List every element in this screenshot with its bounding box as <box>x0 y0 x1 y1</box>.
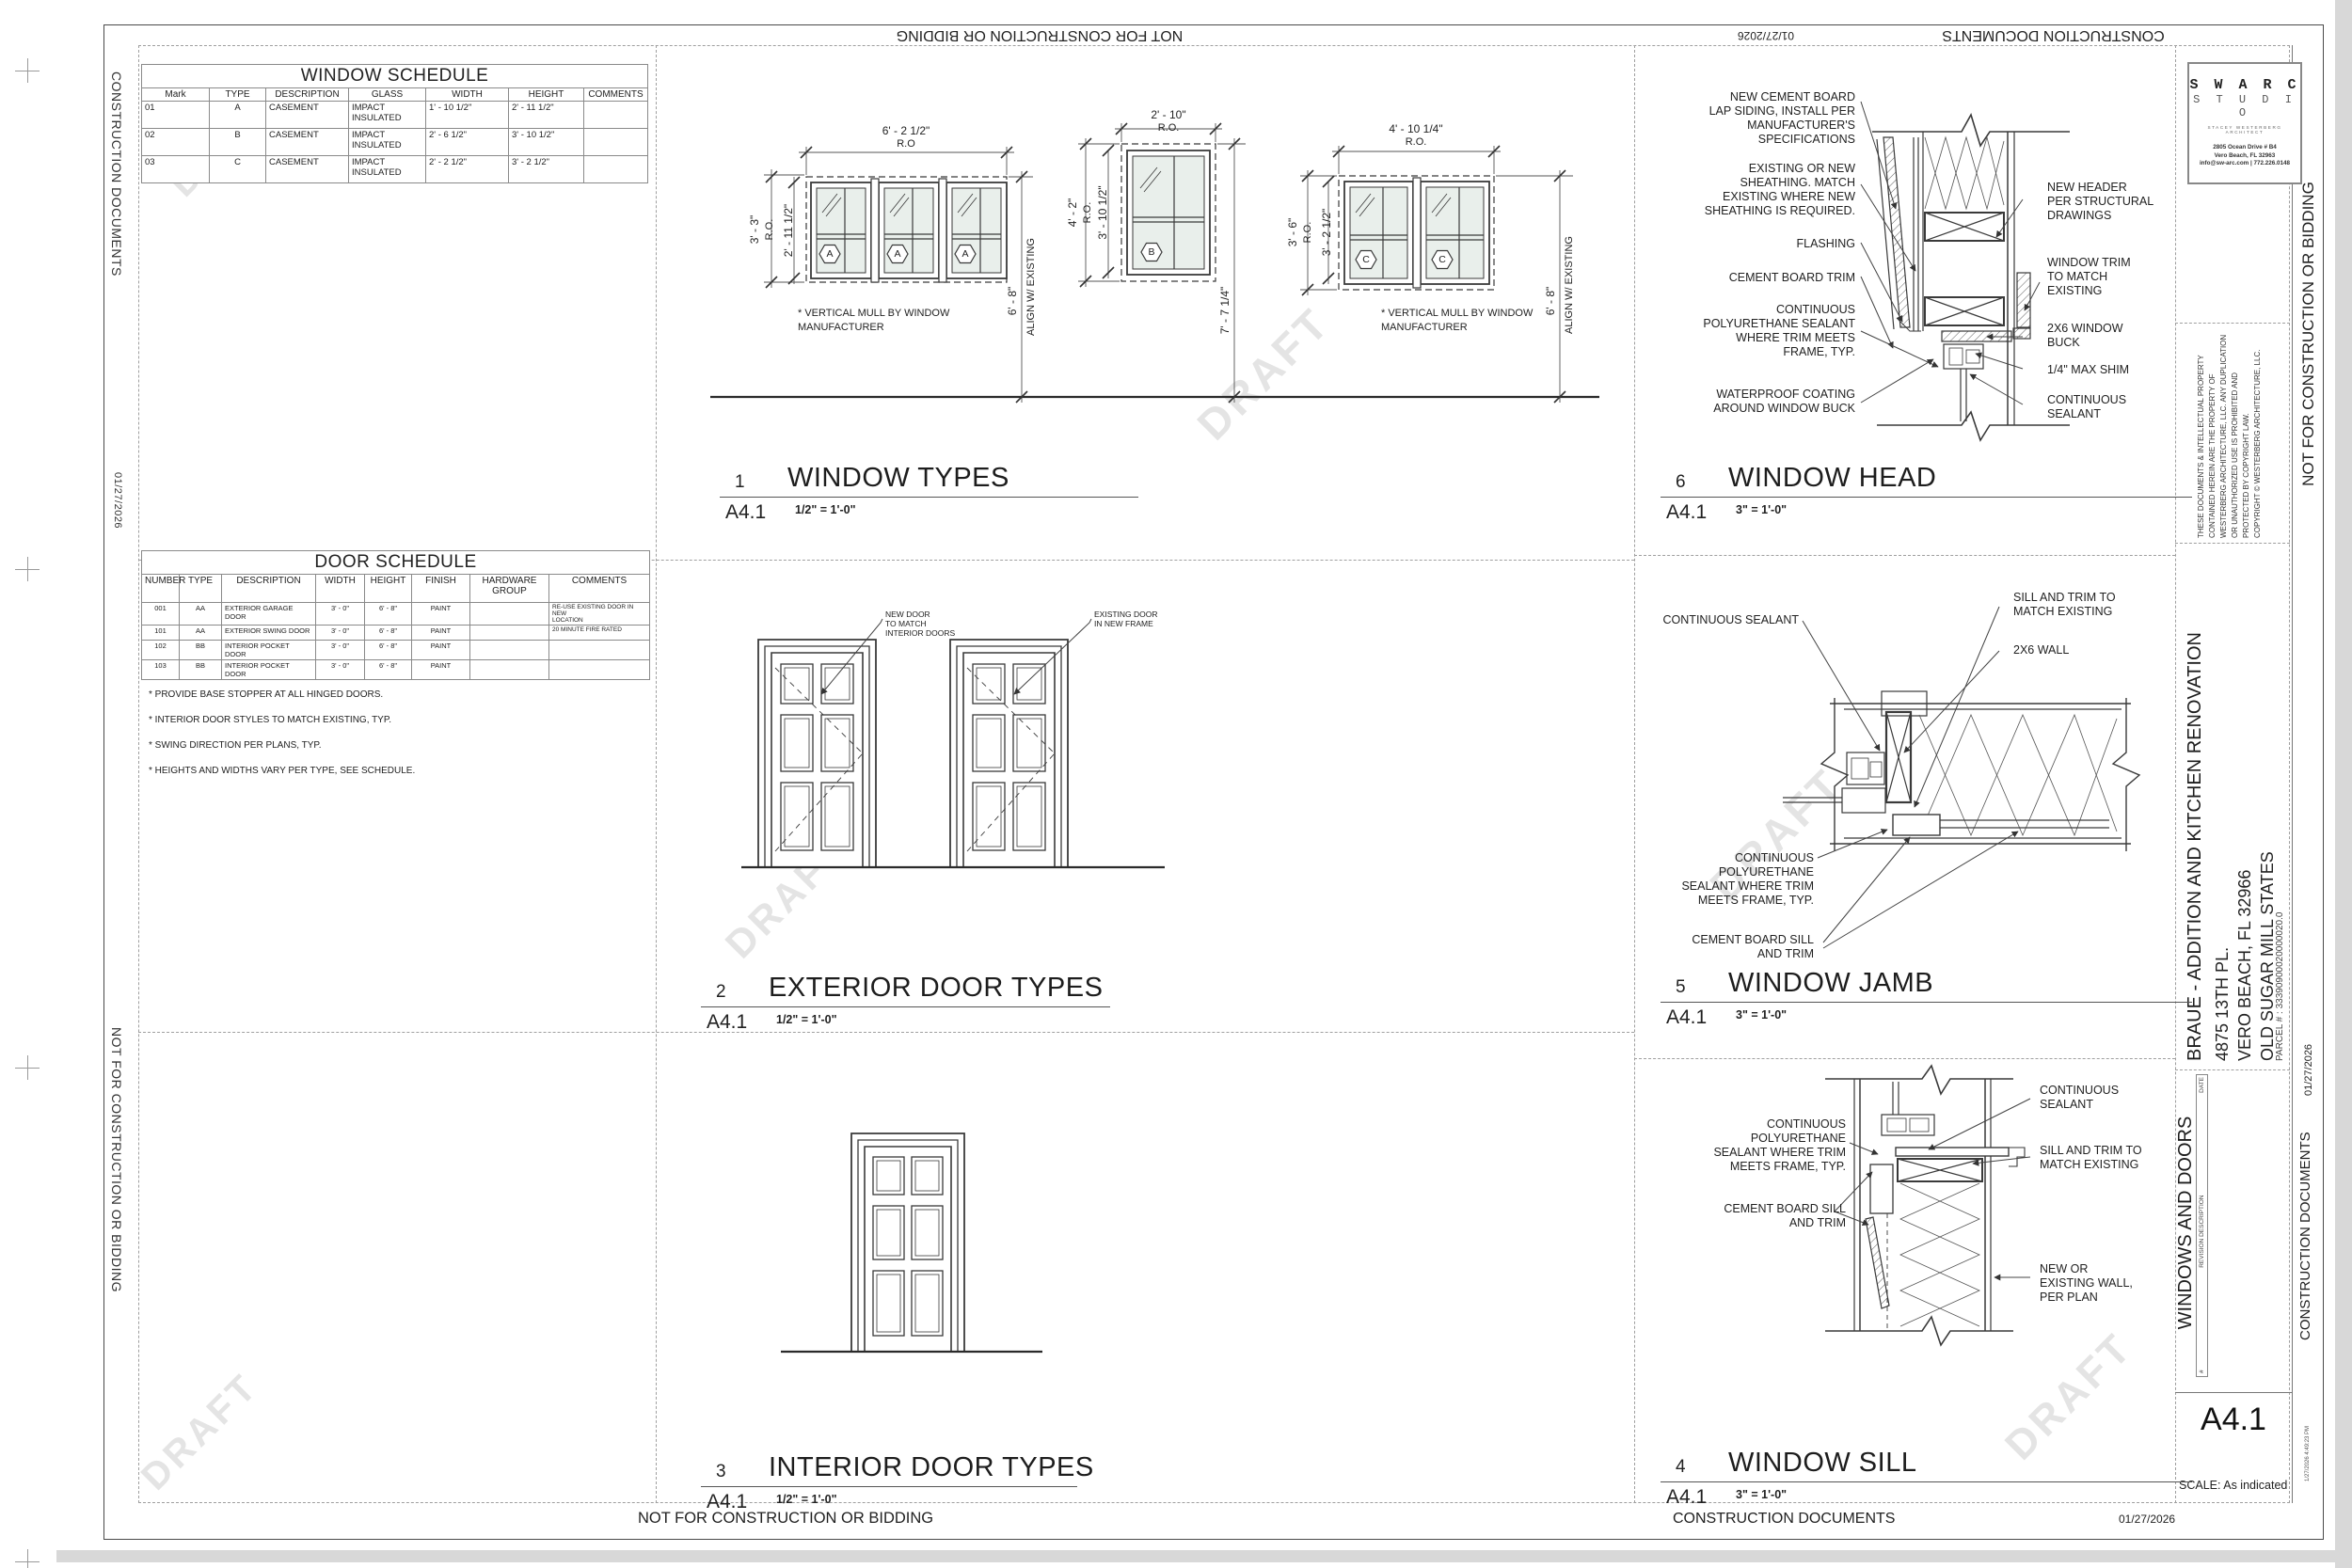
detail-title: WINDOW JAMB <box>1728 968 1933 999</box>
table-row: 102BB INTERIOR POCKET DOOR3' - 0" 6' - 8… <box>142 641 650 660</box>
detail-note: CEMENT BOARD SILL AND TRIM <box>1645 933 1814 961</box>
dim-label: R.O. <box>1081 147 1094 278</box>
top-phase: CONSTRUCTION DOCUMENTS <box>1924 26 2183 43</box>
right-margin-date: 01/27/2026 <box>2303 1039 2314 1096</box>
registration-mark-icon <box>15 1549 40 1568</box>
detail-note: SILL AND TRIM TO MATCH EXISTING <box>2040 1144 2181 1172</box>
interior-door-drawing <box>753 1110 1148 1392</box>
dim-label: R.O <box>850 138 962 150</box>
detail-note: CONTINUOUS POLYURETHANE SEALANT WHERE TR… <box>1667 1117 1846 1174</box>
detail-note: WINDOW TRIM TO MATCH EXISTING <box>2047 256 2188 298</box>
dim-label: R.O. <box>1301 166 1314 298</box>
window-schedule: WINDOW SCHEDULE Mark TYPE DESCRIPTION GL… <box>141 64 648 183</box>
detail-scale: 1/2" = 1'-0" <box>776 1493 837 1506</box>
dim-label: 4' - 2" <box>1066 147 1079 278</box>
detail-note: SILL AND TRIM TO MATCH EXISTING <box>2013 591 2164 619</box>
project-address2: VERO BEACH, FL 32966 <box>2235 624 2255 1061</box>
dim-label: R.O. <box>1359 136 1472 148</box>
door-callout: NEW DOOR TO MATCH INTERIOR DOORS <box>885 610 955 638</box>
window-type-badge: A <box>887 244 908 264</box>
dim-label: 3' - 6" <box>1286 166 1299 298</box>
detail-scale: 1/2" = 1'-0" <box>776 1013 837 1026</box>
mull-note: * VERTICAL MULL BY WINDOW MANUFACTURER <box>798 307 977 335</box>
door-note: * INTERIOR DOOR STYLES TO MATCH EXISTING… <box>149 715 391 725</box>
right-margin-notice: NOT FOR CONSTRUCTION OR BIDDING <box>2299 136 2320 531</box>
divider <box>1634 1058 2175 1059</box>
detail-number: 4 <box>1676 1457 1686 1478</box>
detail-number: 2 <box>716 982 726 1003</box>
right-margin-phase: CONSTRUCTION DOCUMENTS <box>2297 1096 2313 1340</box>
sheet-ref: A4.1 <box>1666 501 1707 524</box>
detail-scale: 3" = 1'-0" <box>1736 503 1787 516</box>
detail-note: FLASHING <box>1667 237 1855 251</box>
table-row: 103BB INTERIOR POCKET DOOR3' - 0" 6' - 8… <box>142 660 650 680</box>
dim-label: 6' - 8" <box>1006 235 1019 367</box>
top-date: 01/27/2026 <box>1705 29 1794 42</box>
divider <box>656 45 657 1503</box>
dim-label: 2' - 10" <box>1112 108 1225 121</box>
dim-label: 7' - 7 1/4" <box>1218 245 1232 376</box>
dim-label: ALIGN W/ EXISTING <box>1563 219 1576 351</box>
viewport-title-window-jamb: 5 A4.1 WINDOW JAMB 3" = 1'-0" <box>1661 974 2192 1030</box>
window-type-badge: C <box>1356 249 1376 270</box>
col-header: FINISH <box>412 575 470 603</box>
left-margin-phase: CONSTRUCTION DOCUMENTS <box>109 71 124 277</box>
sheet-ref: A4.1 <box>707 1491 747 1513</box>
dim-label: 3' - 2 1/2" <box>1320 166 1333 298</box>
divider <box>1634 45 1635 1503</box>
divider <box>2175 543 2290 544</box>
viewport-title-window-types: 1 A4.1 WINDOW TYPES 1/2" = 1'-0" <box>720 468 1138 525</box>
col-header: NUMBER <box>142 575 180 603</box>
window-schedule-title: WINDOW SCHEDULE <box>142 65 648 88</box>
detail-scale: 3" = 1'-0" <box>1736 1008 1787 1022</box>
dim-label: R.O. <box>1112 122 1225 134</box>
detail-title: INTERIOR DOOR TYPES <box>769 1452 1094 1483</box>
detail-note: 2X6 WALL <box>2013 643 2164 657</box>
sheet-ref: A4.1 <box>707 1011 747 1034</box>
col-header: DESCRIPTION <box>222 575 316 603</box>
sheet-ref: A4.1 <box>725 501 766 524</box>
detail-note: CONTINUOUS SEALANT <box>2047 393 2188 421</box>
col-header: WIDTH <box>426 88 509 102</box>
dim-label: 6' - 8" <box>1544 235 1557 367</box>
col-header: TYPE <box>210 88 266 102</box>
door-note: * HEIGHTS AND WIDTHS VARY PER TYPE, SEE … <box>149 766 415 776</box>
dim-label: ALIGN W/ EXISTING <box>1025 221 1038 353</box>
detail-note: EXISTING OR NEW SHEATHING. MATCH EXISTIN… <box>1667 162 1855 218</box>
dim-label: 3' - 3" <box>748 164 761 295</box>
detail-note: WATERPROOF COATING AROUND WINDOW BUCK <box>1667 388 1855 416</box>
col-header: GLASS <box>349 88 426 102</box>
detail-number: 6 <box>1676 472 1686 493</box>
detail-number: 3 <box>716 1462 726 1482</box>
door-callout: EXISTING DOOR IN NEW FRAME <box>1094 610 1158 628</box>
detail-note: 2X6 WINDOW BUCK <box>2047 322 2188 350</box>
sheet-ref: A4.1 <box>1666 1486 1707 1509</box>
detail-note: CONTINUOUS POLYURETHANE SEALANT WHERE TR… <box>1667 303 1855 359</box>
detail-scale: 3" = 1'-0" <box>1736 1488 1787 1501</box>
table-row: 101AA EXTERIOR SWING DOOR3' - 0" 6' - 8"… <box>142 626 650 641</box>
door-note: * PROVIDE BASE STOPPER AT ALL HINGED DOO… <box>149 689 383 700</box>
drawing-sheet: DRAFT DRAFT DRAFT DRAFT DRAFT DRAFT CONS… <box>0 0 2352 1568</box>
left-margin-notice: NOT FOR CONSTRUCTION OR BIDDING <box>109 1027 124 1292</box>
project-parcel: PARCEL # : 33390900020000020.0 <box>2275 624 2285 1061</box>
titleblock-edge <box>2292 45 2293 1503</box>
detail-note: NEW HEADER PER STRUCTURAL DRAWINGS <box>2047 181 2188 223</box>
viewport-title-exterior-doors: 2 A4.1 EXTERIOR DOOR TYPES 1/2" = 1'-0" <box>701 978 1110 1035</box>
col-header: DESCRIPTION <box>266 88 349 102</box>
left-margin-date: 01/27/2026 <box>112 472 123 529</box>
sheet-ref: A4.1 <box>1666 1006 1707 1029</box>
window-type-badge: A <box>955 244 976 264</box>
window-type-badge: A <box>819 244 840 264</box>
dim-label: 4' - 10 1/4" <box>1359 122 1472 135</box>
detail-scale: 1/2" = 1'-0" <box>795 503 856 516</box>
detail-title: WINDOW HEAD <box>1728 463 1936 494</box>
detail-note: 1/4" MAX SHIM <box>2047 363 2188 377</box>
table-row: 02B CASEMENTIMPACT INSULATED 2' - 6 1/2"… <box>142 129 648 156</box>
col-header: HEIGHT <box>509 88 584 102</box>
col-header: Mark <box>142 88 210 102</box>
col-header: HEIGHT <box>365 575 412 603</box>
detail-note: CONTINUOUS SEALANT <box>2040 1084 2181 1112</box>
top-notice: NOT FOR CONSTRUCTION OR BIDDING <box>851 26 1228 43</box>
exterior-doors-drawing <box>696 602 1223 1035</box>
dim-label: 2' - 11 1/2" <box>782 165 795 296</box>
plot-timestamp: 1/27/2026 4:49:23 PM <box>2305 1416 2311 1481</box>
window-type-badge: C <box>1432 249 1453 270</box>
mull-note: * VERTICAL MULL BY WINDOW MANUFACTURER <box>1381 307 1560 335</box>
registration-mark-icon <box>15 58 40 83</box>
viewport-title-window-sill: 4 A4.1 WINDOW SILL 3" = 1'-0" <box>1661 1453 2192 1510</box>
col-header: COMMENTS <box>584 88 648 102</box>
col-header: COMMENTS <box>549 575 650 603</box>
page-edge-right <box>2335 0 2352 1568</box>
project-address1: 4875 13TH PL. <box>2213 624 2233 1061</box>
detail-note: CEMENT BOARD SILL AND TRIM <box>1667 1202 1846 1230</box>
door-schedule: DOOR SCHEDULE NUMBER TYPE DESCRIPTION WI… <box>141 550 650 680</box>
detail-note: NEW OR EXISTING WALL, PER PLAN <box>2040 1262 2181 1305</box>
detail-number: 1 <box>735 472 745 493</box>
table-row: 001AA EXTERIOR GARAGE DOOR3' - 0" 6' - 8… <box>142 603 650 626</box>
door-note: * SWING DIRECTION PER PLANS, TYP. <box>149 740 322 751</box>
detail-note: CONTINUOUS SEALANT <box>1648 613 1799 627</box>
dim-label: 3' - 10 1/2" <box>1096 147 1109 278</box>
detail-number: 5 <box>1676 977 1686 998</box>
detail-title: WINDOW TYPES <box>787 463 1009 494</box>
page-edge-bottom <box>56 1550 2352 1562</box>
table-row: 01A CASEMENTIMPACT INSULATED 1' - 10 1/2… <box>142 102 648 129</box>
viewport-title-interior-doors: 3 A4.1 INTERIOR DOOR TYPES 1/2" = 1'-0" <box>701 1458 1077 1514</box>
col-header: TYPE <box>180 575 222 603</box>
door-schedule-title: DOOR SCHEDULE <box>142 551 650 575</box>
dim-label: R.O. <box>763 164 776 295</box>
registration-mark-icon <box>15 1055 40 1080</box>
window-type-badge: B <box>1141 242 1162 262</box>
detail-title: WINDOW SILL <box>1728 1448 1916 1479</box>
divider <box>1634 555 2175 556</box>
detail-note: CONTINUOUS POLYURETHANE SEALANT WHERE TR… <box>1645 851 1814 908</box>
detail-title: EXTERIOR DOOR TYPES <box>769 973 1103 1004</box>
table-row: 03C CASEMENTIMPACT INSULATED 2' - 2 1/2"… <box>142 156 648 183</box>
col-header: HARDWARE GROUP <box>470 575 549 603</box>
registration-mark-icon <box>15 557 40 581</box>
detail-note: NEW CEMENT BOARD LAP SIDING, INSTALL PER… <box>1667 90 1855 147</box>
viewport-title-window-head: 6 A4.1 WINDOW HEAD 3" = 1'-0" <box>1661 468 2192 525</box>
dim-label: 6' - 2 1/2" <box>850 124 962 137</box>
col-header: WIDTH <box>316 575 365 603</box>
detail-note: CEMENT BOARD TRIM <box>1667 271 1855 285</box>
